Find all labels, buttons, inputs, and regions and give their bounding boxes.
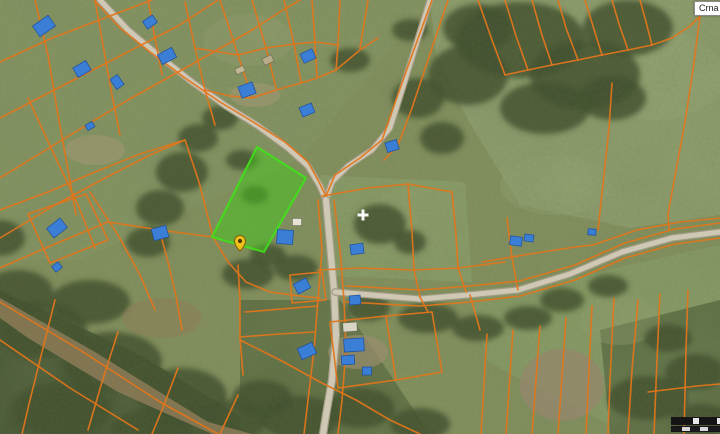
map-viewport[interactable]: Crna v bbox=[0, 0, 720, 434]
map-canvas[interactable] bbox=[0, 0, 720, 434]
place-label: Crna v bbox=[694, 1, 720, 16]
scale-bar bbox=[671, 417, 720, 433]
